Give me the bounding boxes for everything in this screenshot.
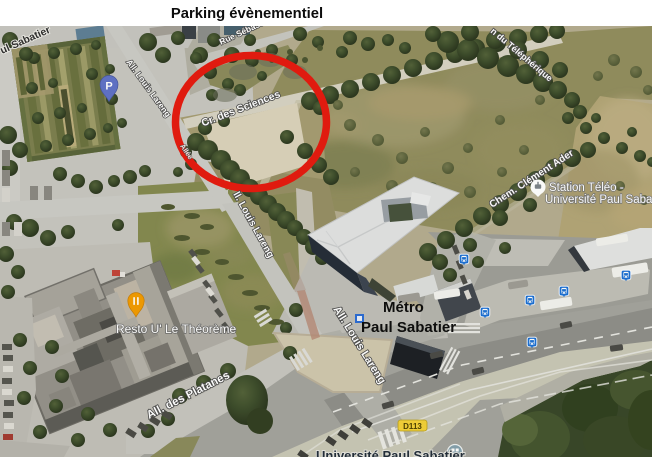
svg-text:Parking évènementiel: Parking évènementiel xyxy=(171,6,323,22)
